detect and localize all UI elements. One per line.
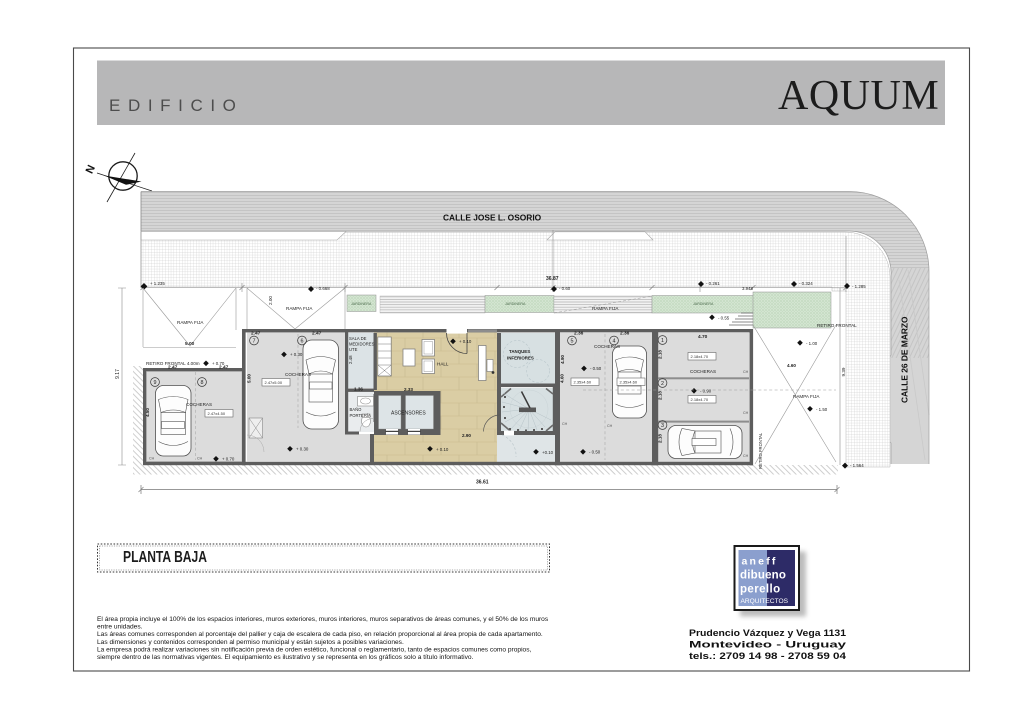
- svg-text:9: 9: [154, 380, 157, 386]
- svg-text:8: 8: [201, 380, 204, 386]
- svg-text:CH: CH: [562, 422, 568, 426]
- svg-text:RAMPA FIJA: RAMPA FIJA: [286, 306, 313, 311]
- svg-text:CH: CH: [743, 454, 749, 458]
- svg-text:- 0.50: - 0.50: [590, 366, 602, 371]
- svg-text:- 1.564: - 1.564: [850, 463, 864, 468]
- svg-text:CH: CH: [197, 457, 203, 461]
- svg-text:6: 6: [301, 339, 304, 345]
- svg-text:2.18: 2.18: [658, 350, 663, 359]
- svg-text:MEDIDORES: MEDIDORES: [349, 342, 375, 347]
- svg-text:2.33: 2.33: [404, 387, 413, 392]
- svg-text:ASCENSORES: ASCENSORES: [391, 411, 426, 417]
- svg-text:- 1.285: - 1.285: [852, 284, 866, 289]
- svg-text:2.90: 2.90: [462, 433, 471, 438]
- svg-text:+ 0.30: + 0.30: [296, 447, 309, 452]
- svg-text:tels.: 2709 14 98 - 2708 59 04: tels.: 2709 14 98 - 2708 59 04: [689, 651, 847, 661]
- svg-text:- 0.90: - 0.90: [700, 389, 712, 394]
- svg-text:+ 0.10: + 0.10: [459, 339, 472, 344]
- svg-text:2.48: 2.48: [348, 355, 353, 364]
- svg-text:- 1.00: - 1.00: [806, 341, 818, 346]
- svg-text:9.17: 9.17: [115, 369, 121, 379]
- svg-text:2.47: 2.47: [219, 365, 229, 371]
- svg-text:RAMPA FIJA: RAMPA FIJA: [592, 306, 619, 311]
- svg-text:1: 1: [661, 338, 664, 344]
- svg-text:3: 3: [661, 423, 664, 429]
- svg-text:COCHERAS: COCHERAS: [594, 344, 620, 349]
- svg-text:- 0.324: - 0.324: [799, 281, 813, 286]
- svg-text:UTE: UTE: [349, 347, 358, 352]
- svg-text:BAÑO: BAÑO: [350, 407, 363, 412]
- svg-text:SALA DE: SALA DE: [349, 336, 367, 341]
- svg-text:La empresa podrá realizar vari: La empresa podrá realizar variaciones si…: [97, 646, 531, 653]
- svg-text:3.948: 3.948: [742, 286, 754, 291]
- svg-text:2.47: 2.47: [168, 365, 178, 371]
- svg-text:INFERIORES: INFERIORES: [507, 356, 534, 361]
- svg-text:+0.10: +0.10: [542, 450, 554, 455]
- svg-text:- 0.261: - 0.261: [706, 281, 720, 286]
- svg-text:HALL: HALL: [437, 362, 449, 367]
- svg-text:9.39: 9.39: [841, 367, 846, 376]
- svg-text:COCHERAS: COCHERAS: [690, 369, 716, 374]
- svg-text:CH: CH: [743, 370, 749, 374]
- svg-text:- 0.60: - 0.60: [559, 286, 571, 291]
- svg-text:COCHERAS: COCHERAS: [285, 372, 311, 377]
- svg-text:dibueno: dibueno: [740, 570, 786, 582]
- svg-text:CH: CH: [149, 457, 155, 461]
- svg-text:CALLE JOSE L. OSORIO: CALLE JOSE L. OSORIO: [443, 213, 542, 223]
- svg-text:CALLE 26 DE MARZO: CALLE 26 DE MARZO: [900, 316, 910, 403]
- svg-text:CH: CH: [743, 411, 749, 415]
- svg-text:36.61: 36.61: [476, 480, 489, 486]
- svg-text:EDIFICIO: EDIFICIO: [109, 96, 243, 115]
- svg-text:PORTERÍA: PORTERÍA: [350, 413, 372, 418]
- svg-text:- 0.668: - 0.668: [316, 286, 330, 291]
- svg-text:RETIRO FRONTAL: RETIRO FRONTAL: [758, 432, 763, 469]
- svg-text:JARDINERA: JARDINERA: [351, 302, 372, 306]
- svg-text:RAMPA FIJA: RAMPA FIJA: [177, 320, 204, 325]
- svg-text:+ 0.10: + 0.10: [436, 447, 449, 452]
- svg-text:Las dimensiones y contenidos c: Las dimensiones y contenidos corresponde…: [97, 639, 404, 646]
- svg-text:Prudencio Vázquez y Vega 1131: Prudencio Vázquez y Vega 1131: [689, 628, 846, 638]
- svg-text:AQUUM: AQUUM: [778, 73, 939, 119]
- svg-text:4.60: 4.60: [787, 363, 796, 368]
- svg-text:2.18x4.70: 2.18x4.70: [691, 397, 709, 402]
- svg-text:2.00: 2.00: [268, 296, 273, 305]
- svg-text:4.60: 4.60: [560, 374, 565, 383]
- svg-text:2.47x5.00: 2.47x5.00: [265, 380, 283, 385]
- svg-text:36.87: 36.87: [546, 276, 559, 282]
- svg-text:7: 7: [253, 339, 256, 345]
- svg-text:COCHERAS: COCHERAS: [186, 402, 212, 407]
- svg-text:2.18: 2.18: [658, 434, 663, 443]
- svg-text:perello: perello: [740, 584, 781, 596]
- svg-text:aneff: aneff: [742, 556, 778, 568]
- svg-text:2.47: 2.47: [312, 331, 322, 337]
- svg-text:5.00: 5.00: [185, 341, 195, 347]
- svg-text:- 0.50: - 0.50: [589, 450, 601, 455]
- svg-text:+ 0.70: + 0.70: [222, 457, 235, 462]
- svg-text:+ 1.235: + 1.235: [150, 281, 165, 286]
- svg-text:RAMPA FIJA: RAMPA FIJA: [793, 394, 820, 399]
- svg-text:JARDINERA: JARDINERA: [505, 302, 526, 306]
- svg-text:Las áreas comunes corresponden: Las áreas comunes corresponden al porcen…: [97, 631, 543, 638]
- svg-text:4.90: 4.90: [560, 355, 565, 364]
- svg-text:4.70: 4.70: [698, 334, 708, 340]
- svg-text:2.36: 2.36: [620, 331, 630, 337]
- svg-text:2.35x4.60: 2.35x4.60: [574, 380, 592, 385]
- svg-text:- 1.50: - 1.50: [816, 407, 828, 412]
- svg-text:TANQUES: TANQUES: [509, 349, 530, 354]
- svg-text:ARQUITECTOS: ARQUITECTOS: [741, 598, 789, 605]
- svg-text:2.18x4.70: 2.18x4.70: [691, 354, 709, 359]
- svg-text:JARDINERA: JARDINERA: [693, 302, 714, 306]
- svg-text:- 0.55: - 0.55: [718, 316, 730, 321]
- svg-text:1.36: 1.36: [354, 387, 363, 392]
- svg-text:2.18: 2.18: [658, 391, 663, 400]
- svg-text:2.47: 2.47: [251, 331, 261, 337]
- svg-text:RETIRO FRONTAL: RETIRO FRONTAL: [817, 323, 857, 328]
- svg-text:5: 5: [571, 339, 574, 345]
- svg-text:5.00: 5.00: [247, 374, 252, 383]
- svg-text:4.50: 4.50: [145, 408, 150, 417]
- svg-text:CH: CH: [607, 424, 613, 428]
- svg-text:+ 0.30: + 0.30: [290, 352, 303, 357]
- svg-text:El área propia incluye el 100%: El área propia incluye el 100% de los es…: [97, 616, 549, 623]
- svg-text:entre unidades.: entre unidades.: [97, 624, 143, 631]
- svg-text:2.35x4.60: 2.35x4.60: [620, 380, 638, 385]
- svg-text:2: 2: [661, 381, 664, 387]
- svg-text:Montevideo - Uruguay: Montevideo - Uruguay: [689, 640, 847, 650]
- svg-text:siempre dentro de las normativ: siempre dentro de las normativas vigente…: [97, 654, 474, 661]
- svg-text:2.47x4.50: 2.47x4.50: [208, 411, 226, 416]
- svg-text:PLANTA BAJA: PLANTA BAJA: [123, 549, 207, 566]
- svg-text:2.36: 2.36: [574, 331, 584, 337]
